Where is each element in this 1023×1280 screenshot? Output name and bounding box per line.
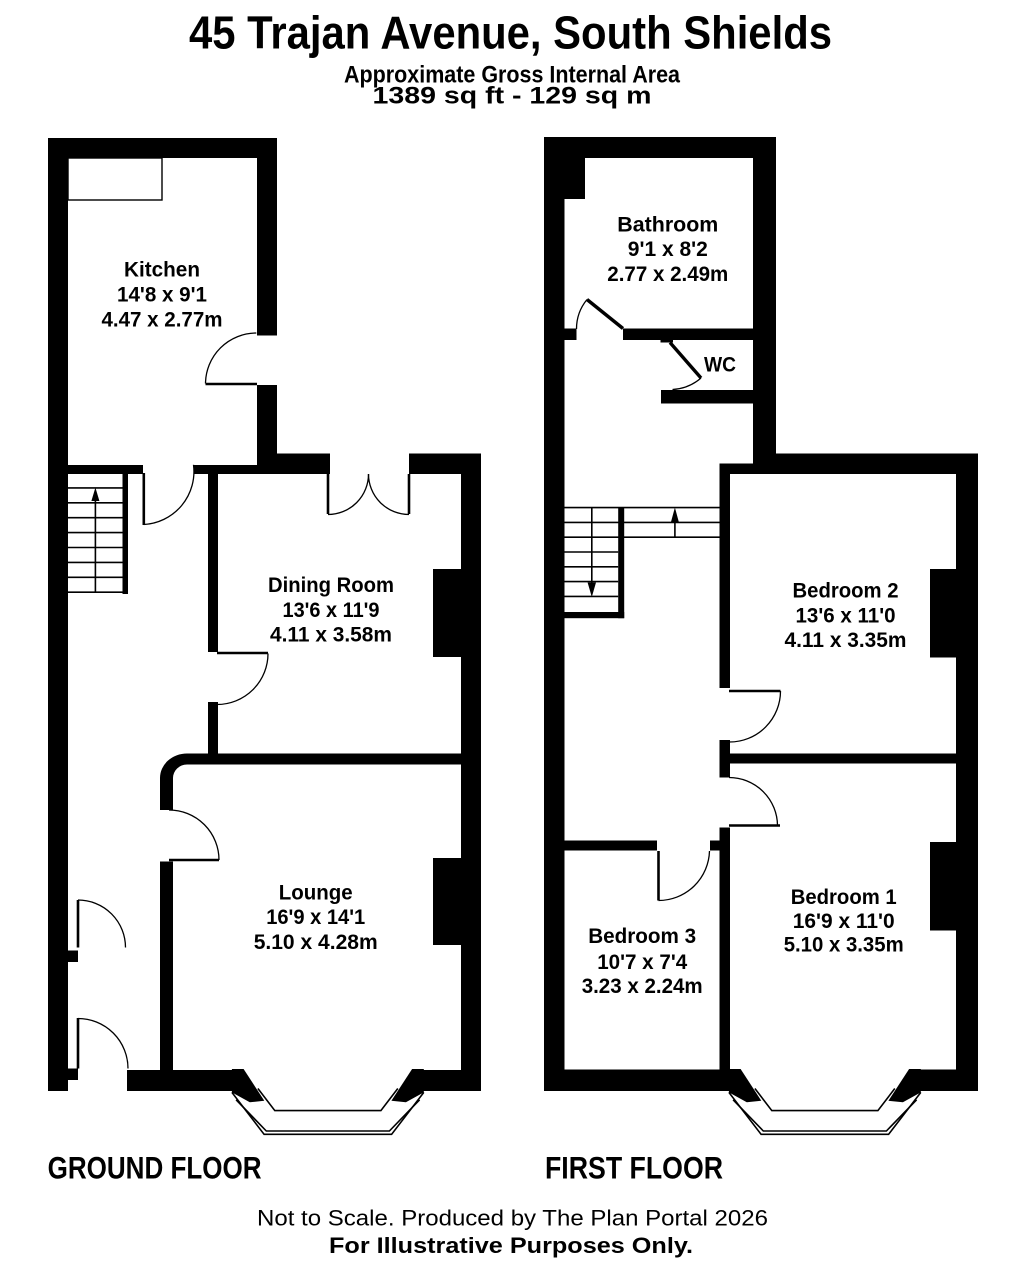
svg-text:2.77 x 2.49m: 2.77 x 2.49m (607, 262, 728, 286)
svg-text:Bedroom 3: Bedroom 3 (588, 924, 696, 948)
svg-text:4.11 x 3.35m: 4.11 x 3.35m (785, 628, 907, 652)
svg-text:Bedroom 1: Bedroom 1 (791, 885, 897, 909)
svg-text:5.10 x 3.35m: 5.10 x 3.35m (784, 933, 904, 957)
svg-text:4.11 x 3.58m: 4.11 x 3.58m (270, 623, 392, 647)
svg-text:Kitchen: Kitchen (124, 258, 200, 282)
svg-text:3.23 x 2.24m: 3.23 x 2.24m (582, 974, 703, 998)
svg-text:WC: WC (704, 352, 736, 376)
svg-text:Bathroom: Bathroom (617, 213, 718, 237)
svg-text:Dining Room: Dining Room (268, 573, 394, 597)
svg-text:16'9 x 11'0: 16'9 x 11'0 (793, 909, 895, 933)
svg-text:For Illustrative Purposes Only: For Illustrative Purposes Only. (329, 1233, 693, 1258)
svg-text:13'6 x 11'9: 13'6 x 11'9 (283, 598, 380, 622)
svg-text:14'8 x 9'1: 14'8 x 9'1 (117, 283, 207, 307)
svg-text:10'7 x 7'4: 10'7 x 7'4 (597, 950, 687, 974)
svg-text:Lounge: Lounge (279, 881, 353, 905)
svg-text:45 Trajan Avenue, South Shield: 45 Trajan Avenue, South Shields (189, 7, 832, 59)
svg-text:FIRST FLOOR: FIRST FLOOR (545, 1150, 723, 1186)
svg-text:16'9 x 14'1: 16'9 x 14'1 (266, 905, 365, 929)
svg-text:1389 sq ft - 129 sq m: 1389 sq ft - 129 sq m (373, 83, 652, 110)
svg-text:9'1 x 8'2: 9'1 x 8'2 (628, 237, 708, 261)
svg-text:Not to Scale. Produced by The: Not to Scale. Produced by The Plan Porta… (257, 1206, 768, 1231)
svg-text:Bedroom 2: Bedroom 2 (793, 579, 899, 603)
svg-text:4.47 x 2.77m: 4.47 x 2.77m (102, 308, 223, 332)
svg-text:5.10 x 4.28m: 5.10 x 4.28m (254, 930, 378, 954)
svg-text:13'6 x 11'0: 13'6 x 11'0 (796, 603, 896, 627)
svg-text:GROUND FLOOR: GROUND FLOOR (48, 1150, 262, 1186)
